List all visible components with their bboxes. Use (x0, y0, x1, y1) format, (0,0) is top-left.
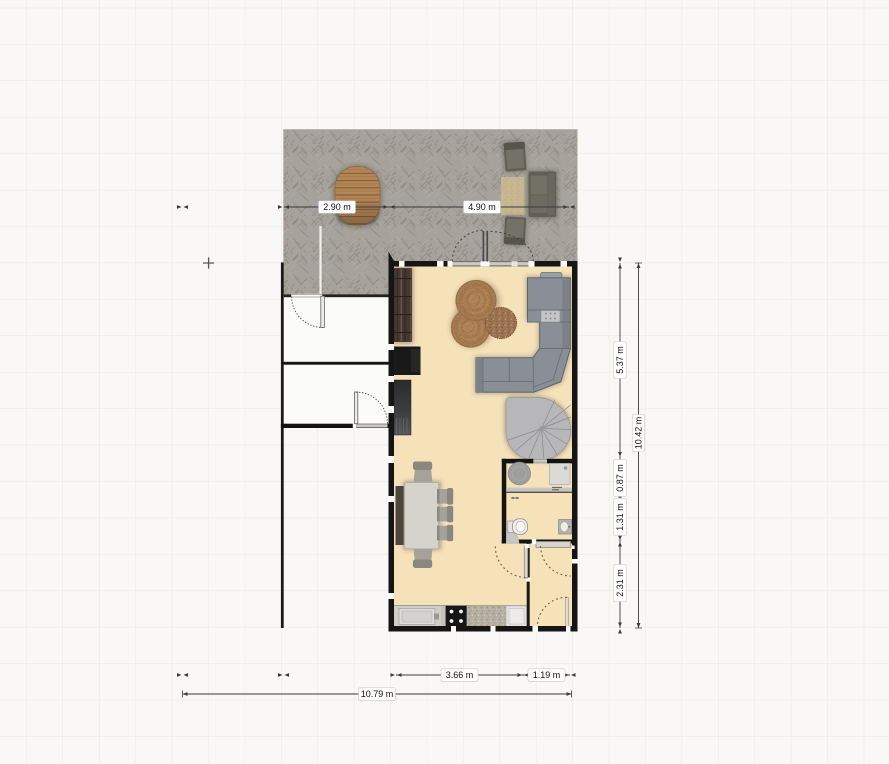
svg-text:4.90 m: 4.90 m (468, 202, 496, 212)
svg-text:2.31 m: 2.31 m (615, 569, 625, 597)
svg-text:1.19 m: 1.19 m (533, 670, 561, 680)
svg-text:1.31 m: 1.31 m (615, 503, 625, 531)
svg-text:2.90 m: 2.90 m (323, 202, 351, 212)
svg-text:3.66 m: 3.66 m (446, 670, 474, 680)
svg-text:10.42 m: 10.42 m (634, 417, 644, 450)
svg-text:0.87 m: 0.87 m (615, 464, 625, 492)
svg-text:10.79 m: 10.79 m (361, 689, 394, 699)
svg-text:5.37 m: 5.37 m (615, 346, 625, 374)
